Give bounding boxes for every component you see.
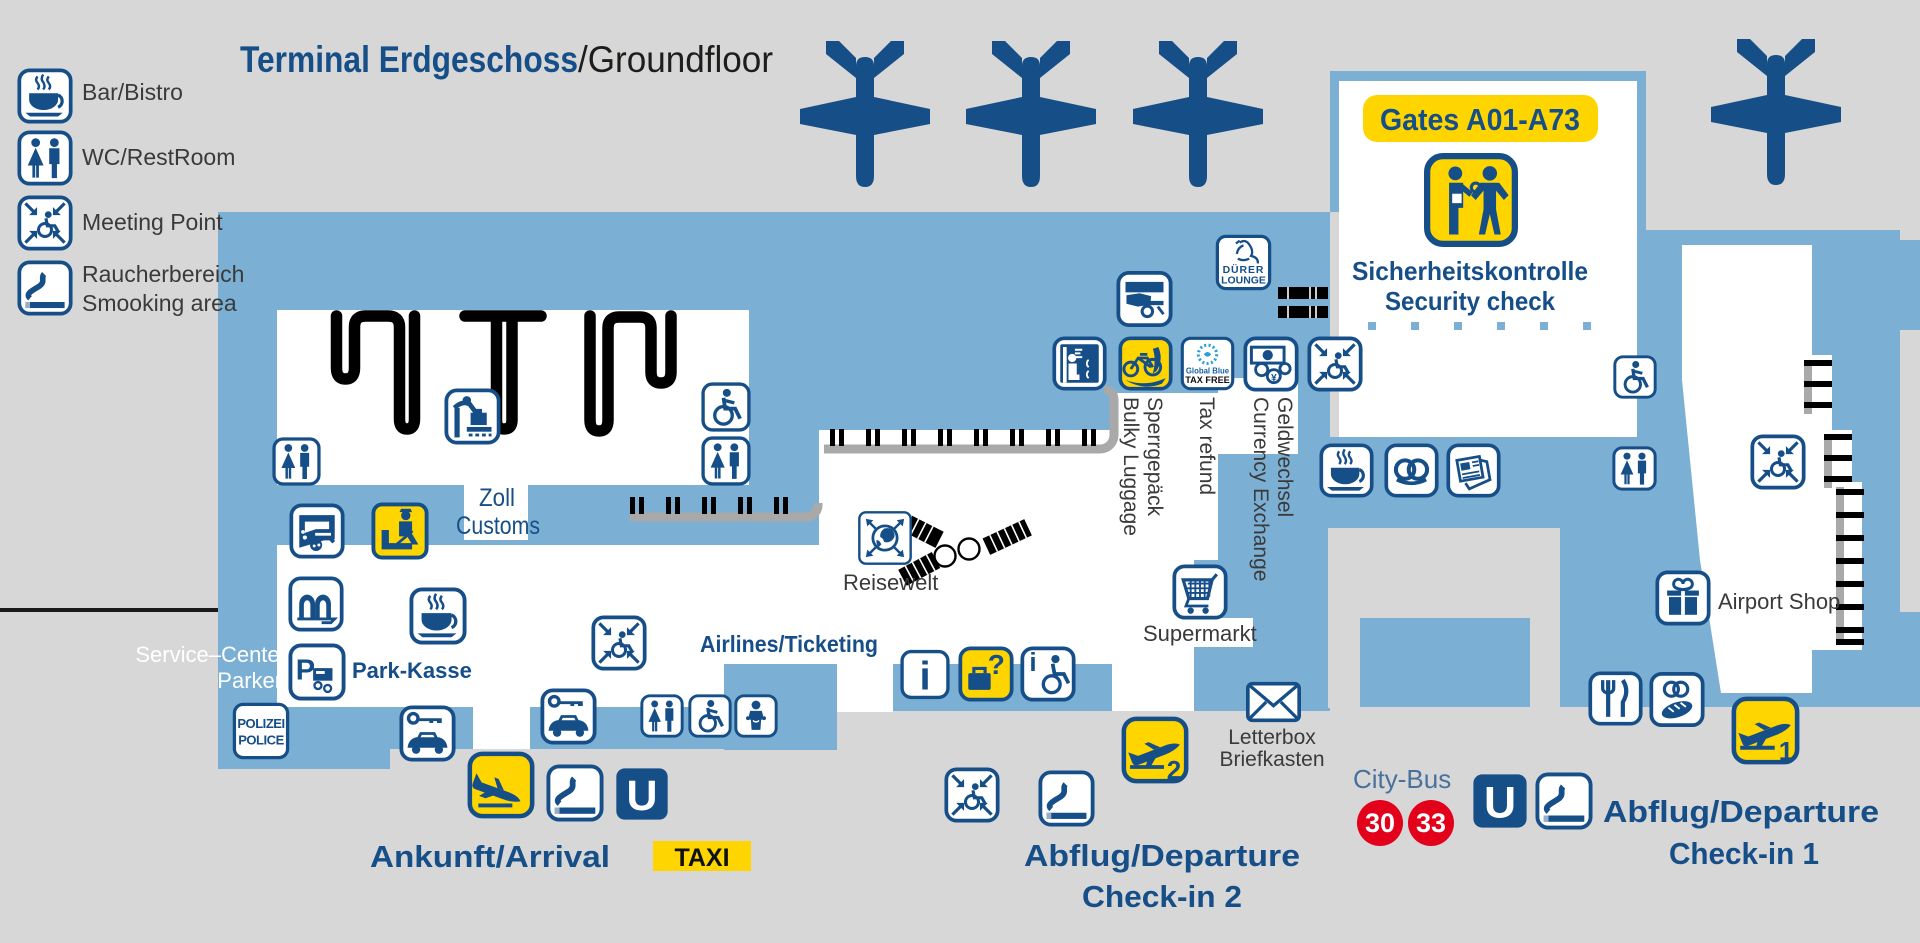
svg-text:Ankunft/Arrival: Ankunft/Arrival bbox=[370, 839, 610, 874]
svg-text:Abflug/Departure: Abflug/Departure bbox=[1603, 794, 1879, 829]
svg-text:1: 1 bbox=[1779, 736, 1793, 766]
svg-text:33: 33 bbox=[1416, 808, 1446, 838]
svg-text:Abflug/Departure: Abflug/Departure bbox=[1024, 838, 1300, 873]
svg-text:City-Bus: City-Bus bbox=[1353, 764, 1451, 794]
svg-text:Customs: Customs bbox=[456, 512, 540, 540]
svg-text:Zoll: Zoll bbox=[479, 484, 515, 512]
svg-text:Service–Center: Service–Center bbox=[135, 642, 287, 667]
svg-text:2: 2 bbox=[1167, 755, 1181, 785]
svg-text:Check-in 2: Check-in 2 bbox=[1082, 879, 1242, 914]
svg-text:/Groundfloor: /Groundfloor bbox=[578, 39, 773, 80]
svg-text:Sperrgepäck: Sperrgepäck bbox=[1143, 397, 1166, 517]
svg-text:Briefkasten: Briefkasten bbox=[1219, 748, 1324, 771]
svg-text:Meeting Point: Meeting Point bbox=[82, 209, 223, 235]
svg-text:Park-Kasse: Park-Kasse bbox=[352, 658, 472, 683]
svg-text:Bulky Luggage: Bulky Luggage bbox=[1119, 397, 1142, 536]
svg-text:Letterbox: Letterbox bbox=[1228, 726, 1316, 749]
svg-text:Supermarkt: Supermarkt bbox=[1143, 621, 1257, 646]
svg-text:30: 30 bbox=[1365, 808, 1395, 838]
svg-text:WC/RestRoom: WC/RestRoom bbox=[82, 144, 235, 170]
svg-text:Terminal Erdgeschoss: Terminal Erdgeschoss bbox=[240, 39, 578, 80]
svg-text:Sicherheitskontrolle: Sicherheitskontrolle bbox=[1352, 256, 1588, 286]
svg-text:Check-in 1: Check-in 1 bbox=[1669, 836, 1819, 871]
svg-text:Geldwechsel: Geldwechsel bbox=[1273, 397, 1296, 517]
svg-text:Tax refund: Tax refund bbox=[1195, 397, 1218, 495]
svg-text:Currency Exchange: Currency Exchange bbox=[1249, 397, 1272, 581]
svg-text:Airlines/Ticketing: Airlines/Ticketing bbox=[700, 631, 878, 657]
svg-text:Smooking area: Smooking area bbox=[82, 290, 237, 316]
svg-text:Security check: Security check bbox=[1385, 286, 1555, 316]
svg-text:Gates A01-A73: Gates A01-A73 bbox=[1380, 102, 1580, 137]
svg-text:Raucherbereich: Raucherbereich bbox=[82, 261, 244, 287]
svg-text:Reisewelt: Reisewelt bbox=[843, 570, 938, 595]
svg-text:Airport Shop: Airport Shop bbox=[1718, 589, 1840, 614]
svg-text:Parken: Parken bbox=[217, 668, 287, 693]
svg-text:Bar/Bistro: Bar/Bistro bbox=[82, 79, 183, 105]
svg-text:TAXI: TAXI bbox=[674, 844, 729, 872]
